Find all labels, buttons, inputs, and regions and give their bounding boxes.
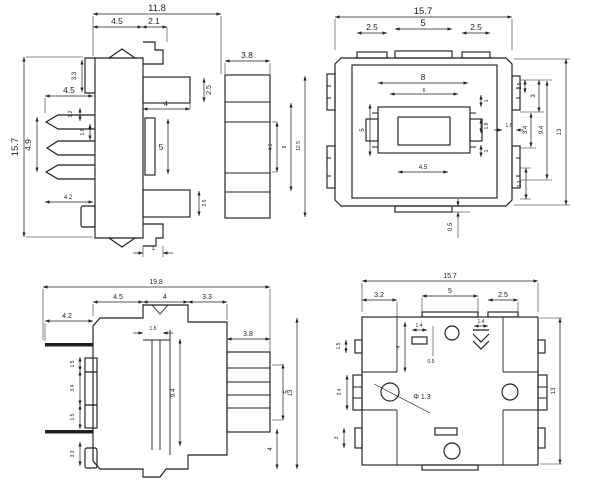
dim-label: 1.4 [416,323,423,329]
technical-drawing: 11.8 4.5 2.1 3.8 15.7 3.3 4.5 1.2 1.8 4.… [0,0,600,489]
dim-label: 1 [484,99,490,102]
dim-label: 2.5 [366,22,378,32]
side-view: 19.8 4.5 4 3.3 4.2 1.5 3.4 1.5 3.3 1.5 9… [43,279,297,477]
dim-label: 12.5 [296,141,302,151]
dim-label: 2.5 [498,292,508,299]
dim-label: 3 [531,94,537,98]
dim-label: 1.5 [70,413,76,420]
dim-label: 3.4 [337,388,343,395]
dim-label: 1.5 [336,342,342,349]
dim-label: 3.8 [241,50,253,60]
dim-label: 9.4 [171,388,177,397]
dim-label: 1.8 [484,122,490,129]
dim-label: 1.5 [517,82,523,89]
dim-label: 1.4 [478,319,485,325]
dim-label: 2.5 [470,22,482,32]
dim-label: 3.4 [70,384,76,391]
dim-label: 9.4 [539,125,545,134]
dim-label: 1.2 [68,110,74,117]
dim-label: 5 [448,288,452,295]
dim-label: 3.3 [517,180,523,187]
dim-label: 6 [423,88,426,94]
dim-label: 3 [334,436,340,439]
bottom-dimension-lines [344,281,560,464]
dim-label: 1.6 [506,123,513,129]
dim-label: 2.1 [148,16,160,26]
dim-label: 13 [288,389,294,396]
dim-label: 4.2 [64,195,73,201]
front-extension-lines [26,16,270,257]
front-dim-labels: 11.8 4.5 2.1 3.8 15.7 3.3 4.5 1.2 1.8 4.… [10,3,302,252]
dim-label: 4.9 [23,139,33,151]
dim-label: 1.5 [70,360,76,367]
dim-label: Φ 1.3 [413,394,430,401]
dim-label: 4 [396,345,402,348]
dim-label: 1 [484,149,490,152]
dim-label: 3.8 [243,331,253,338]
dim-label: 5 [360,128,366,132]
dim-label: 11.8 [148,3,166,14]
dim-label: 1 [151,246,155,252]
bottom-outline [353,312,547,470]
dim-label: 3.3 [202,294,212,301]
side-extension-lines [43,289,283,420]
dim-label: 3.2 [374,292,384,299]
dim-label: 2.5 [202,199,208,206]
bottom-view: 15.7 3.2 5 2.5 1.5 3.4 3 4 1.4 0.5 1.4 Φ… [334,273,562,470]
dim-label: 8 [282,145,288,148]
dim-label: 4.5 [419,165,428,171]
dim-label: 5 [159,142,164,152]
dim-label: 5 [420,18,425,29]
orientation-mark [473,330,489,349]
dim-label: 8 [421,72,426,82]
dim-label: 13 [557,128,563,135]
dim-label: 15.7 [443,273,457,280]
dim-label: 15.7 [10,138,21,157]
drawing-canvas: 11.8 4.5 2.1 3.8 15.7 3.3 4.5 1.2 1.8 4.… [0,0,600,489]
dim-label: 4 [163,294,167,301]
hole-bottom [444,443,460,459]
dim-label: 13 [551,387,557,394]
dim-label: 0.5 [428,359,435,365]
dim-label: 4 [268,447,274,451]
dim-label: 2.5 [206,85,213,95]
dim-label: 1.5 [150,326,157,332]
hole-top [445,326,459,340]
dim-label: 4.5 [113,294,123,301]
dim-label: 4.2 [62,313,72,320]
dim-label: 4.5 [111,16,123,26]
top-view: 15.7 2.5 5 2.5 8 6 5 4.5 1 1.8 1 1.6 1.5… [327,6,570,238]
front-view: 11.8 4.5 2.1 3.8 15.7 3.3 4.5 1.2 1.8 4.… [10,3,305,257]
hole-right [502,384,518,400]
top-dim-labels: 15.7 2.5 5 2.5 8 6 5 4.5 1 1.8 1 1.6 1.5… [360,6,563,231]
dim-label: 15.7 [414,6,433,17]
dim-label: 1.8 [80,128,86,135]
dim-label: 3.3 [72,71,78,80]
dim-label: 3.4 [523,125,529,134]
dim-label: 0.5 [448,222,454,231]
dim-label: 4 [164,101,168,108]
dim-label: 19.8 [149,279,163,286]
dim-label: 4.5 [268,143,274,150]
side-outline [45,305,270,477]
bottom-extension-lines [362,283,562,464]
dim-label: 3.3 [70,450,76,457]
bottom-dim-labels: 15.7 3.2 5 2.5 1.5 3.4 3 4 1.4 0.5 1.4 Φ… [334,273,557,439]
dim-label: 4.5 [63,85,75,95]
